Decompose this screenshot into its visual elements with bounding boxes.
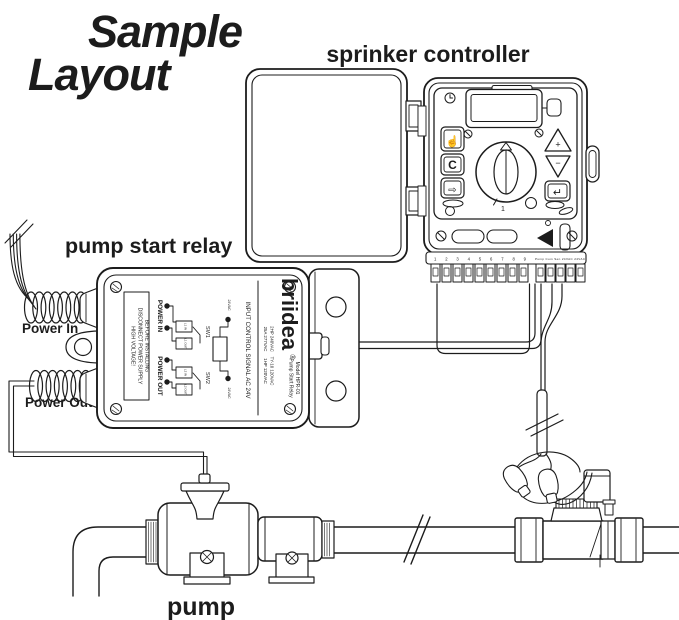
relay-to-controller-wires xyxy=(330,284,541,354)
warning-line-3: BEFORE INSTALLING xyxy=(144,320,150,373)
wire-break-mark-top xyxy=(5,220,27,243)
elbow-pipe xyxy=(73,527,146,596)
24vac-bottom-label: 24VAC xyxy=(227,387,231,399)
24vac-top-label: 24VAC xyxy=(227,299,231,311)
rating-ty10: TY-10 120VAC xyxy=(270,357,275,386)
valve-body xyxy=(543,521,603,559)
sprinkler-valve xyxy=(515,470,643,567)
sprinkler-controller-label: sprinker controller xyxy=(326,41,529,67)
valve-union-left xyxy=(515,518,543,562)
controller-body: ☝ C ⇨ + − ↵ xyxy=(418,78,599,282)
warning-line-2: DISCONNECT POWER SUPPLY xyxy=(137,308,143,385)
power-in-terminal-label: POWER IN xyxy=(156,300,163,333)
dial-position-label: 1 xyxy=(501,206,505,213)
page-title: Sample Layout xyxy=(28,6,242,100)
pump-wire-connector xyxy=(199,474,210,483)
valve-wire-connections xyxy=(500,452,592,505)
power-in-conduit-coil xyxy=(25,292,88,323)
power-in-label: Power In xyxy=(22,321,78,336)
input-signal-label: INPUT CONTROL SIGNAL AC 24V xyxy=(244,301,251,399)
pump-rear-foot xyxy=(269,552,314,583)
valve-union-right xyxy=(615,518,643,562)
pipe-break-mark xyxy=(404,515,423,562)
clear-button: C xyxy=(441,154,464,175)
controller-to-valve-wires xyxy=(526,284,563,456)
title-line-2: Layout xyxy=(28,49,173,100)
model-line-1: Pump Start Relay xyxy=(288,358,294,398)
valve-cable-sheath xyxy=(537,390,547,456)
sample-layout-diagram: Sample Layout sprinker controller pump s… xyxy=(0,0,679,620)
terminal-blocks xyxy=(431,264,585,282)
diagram-canvas: Sample Layout sprinker controller pump s… xyxy=(0,0,679,620)
terminal-strip: 1 2 3 4 5 6 7 8 9 Pump Com Sen 24VAC 24V… xyxy=(426,252,586,264)
pump-label: pump xyxy=(167,593,235,620)
l2-out-label: L2 OUT xyxy=(184,384,188,395)
controller-side-latch xyxy=(586,146,599,182)
l1-in-label: L1 IN xyxy=(184,323,188,330)
l2-in-label: L2 IN xyxy=(184,369,188,376)
valve-bonnet xyxy=(551,508,602,521)
pump-start-relay-label: pump start relay xyxy=(65,234,232,258)
enter-icon: ↵ xyxy=(553,187,562,199)
pump-start-relay-box: HIGH VOLTAGE! DISCONNECT POWER SUPPLY BE… xyxy=(97,268,309,428)
rating-1hp: 1HP 120VAC xyxy=(263,358,268,384)
sw2-label: SW2 xyxy=(204,372,210,384)
sw1-label: SW1 xyxy=(204,326,210,338)
pump-foot xyxy=(184,551,230,585)
briidea-logo: briidea xyxy=(277,278,302,351)
clear-button-label: C xyxy=(448,158,457,172)
warning-line-1: HIGH VOLTAGE! xyxy=(130,326,136,366)
terminal-labels: Pump Com Sen 24VAC 24VAC xyxy=(535,257,586,261)
rating-2hp: 2HP 240VAC xyxy=(270,326,275,352)
minus-button-label: − xyxy=(555,158,560,168)
hand-icon: ☝ xyxy=(446,134,460,148)
power-in-supply-wires xyxy=(5,220,36,309)
model-line-2: Model HPR-01 xyxy=(294,362,300,395)
rating-25a: 25A 277VAC xyxy=(263,327,268,352)
plus-button-label: + xyxy=(555,140,560,150)
pump-assembly xyxy=(73,474,334,596)
controller-door xyxy=(246,69,421,262)
wire-nut-left xyxy=(500,462,535,501)
l1-out-label: L1 OUT xyxy=(184,338,188,349)
arrow-right-icon: ⇨ xyxy=(448,185,456,196)
valve-bleed-screw xyxy=(603,500,615,515)
outlet-coupling xyxy=(322,521,334,558)
power-out-terminal-label: POWER OUT xyxy=(156,356,163,396)
